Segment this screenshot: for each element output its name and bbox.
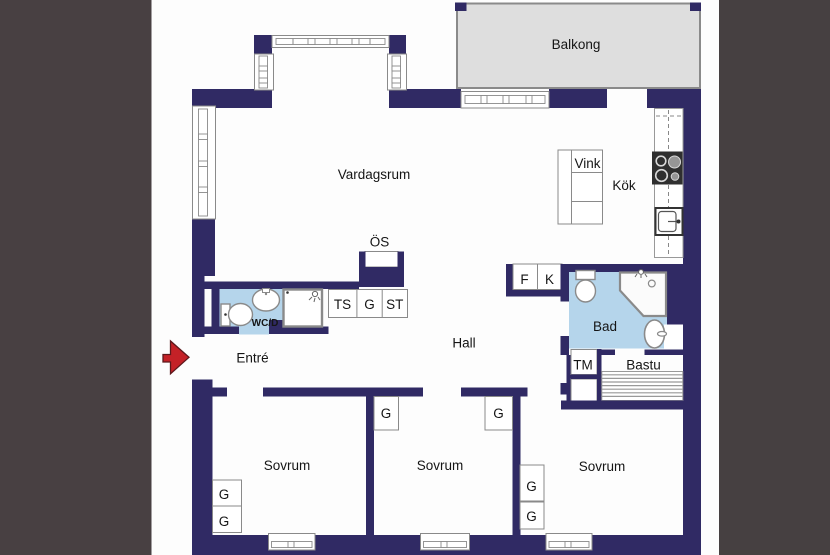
svg-text:Sovrum: Sovrum (579, 459, 626, 474)
svg-text:TS: TS (334, 297, 351, 312)
svg-text:Vardagsrum: Vardagsrum (338, 167, 411, 182)
svg-text:Sovrum: Sovrum (264, 458, 311, 473)
svg-text:Bastu: Bastu (626, 358, 661, 373)
svg-text:Kök: Kök (612, 178, 636, 193)
svg-text:K: K (545, 272, 554, 287)
svg-text:Hall: Hall (452, 336, 475, 351)
svg-text:Vink: Vink (574, 156, 600, 171)
svg-text:ÖS: ÖS (370, 235, 390, 250)
svg-text:ST: ST (386, 297, 403, 312)
svg-text:G: G (219, 514, 230, 529)
svg-text:WC/D: WC/D (252, 318, 279, 329)
svg-text:G: G (381, 406, 392, 421)
svg-text:TM: TM (573, 358, 593, 373)
svg-text:Bad: Bad (593, 319, 617, 334)
svg-text:G: G (493, 406, 504, 421)
svg-text:Entré: Entré (236, 351, 268, 366)
svg-text:G: G (364, 297, 375, 312)
svg-text:G: G (219, 487, 230, 502)
svg-text:Balkong: Balkong (552, 37, 601, 52)
svg-text:F: F (520, 272, 528, 287)
svg-text:G: G (526, 509, 537, 524)
svg-text:G: G (526, 479, 537, 494)
svg-text:Sovrum: Sovrum (417, 458, 464, 473)
